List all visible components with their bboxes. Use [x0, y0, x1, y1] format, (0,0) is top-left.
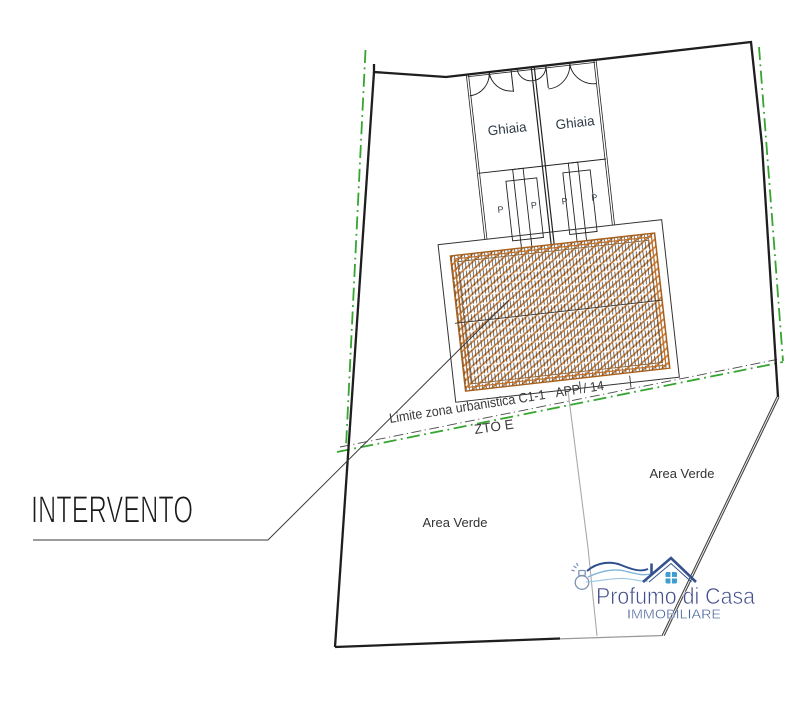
svg-text:Area Verde: Area Verde [422, 515, 487, 530]
svg-text:INTERVENTO: INTERVENTO [31, 490, 193, 532]
svg-text:P: P [591, 192, 598, 203]
svg-text:Area Verde: Area Verde [649, 466, 714, 481]
svg-text:Profumo di Casa: Profumo di Casa [596, 583, 755, 609]
svg-text:IMMOBILIARE: IMMOBILIARE [627, 607, 721, 622]
svg-text:P: P [497, 204, 504, 215]
svg-text:P: P [530, 200, 537, 211]
svg-text:P: P [561, 196, 568, 207]
